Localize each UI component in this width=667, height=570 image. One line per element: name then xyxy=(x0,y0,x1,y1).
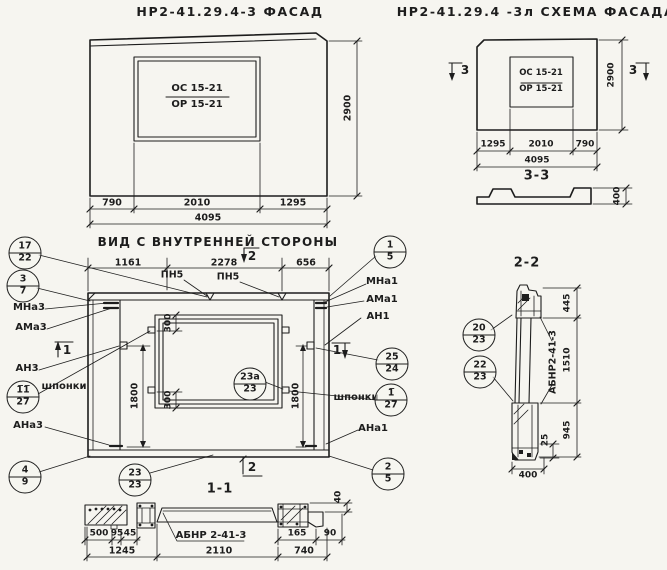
callout-1-5: 1 5 xyxy=(374,236,407,269)
view-dim-300-bottom: 300 xyxy=(165,391,174,410)
s11-dim-165: 165 xyxy=(288,530,307,539)
view-mark-2-bottom: 2 xyxy=(248,461,256,473)
callout-17-22: 17 22 xyxy=(9,237,42,270)
s11-dim-40: 40 xyxy=(335,491,344,504)
scheme-window-mark-top: ОС 15-21 xyxy=(519,69,563,78)
s22-dim-945: 945 xyxy=(564,421,573,440)
view-dim-300-top: 300 xyxy=(165,314,174,333)
drawing-canvas: НР2-41.29.4-3 ФАСАД НР2-41.29.4 -3л СХЕМ… xyxy=(0,0,667,570)
label-mna3: МНа3 xyxy=(13,303,45,313)
scheme-title: НР2-41.29.4 -3л СХЕМА ФАСАДА xyxy=(397,6,667,19)
s11-dim-740: 740 xyxy=(294,546,314,556)
callout-bottom: 27 xyxy=(376,401,407,412)
callout-bottom: 23 xyxy=(465,373,496,384)
callout-23-23: 23 23 xyxy=(119,464,152,497)
scheme-dim-1295: 1295 xyxy=(480,141,505,150)
callout-bottom: 5 xyxy=(375,253,406,264)
facade-dim-2010: 2010 xyxy=(184,198,210,208)
s11-label: АБНР 2-41-3 xyxy=(176,531,247,541)
callout-4-9: 4 9 xyxy=(9,461,42,494)
section-3-3-title: 3-3 xyxy=(524,170,551,183)
s11-dim-90: 90 xyxy=(324,530,337,539)
view-mark-2-top: 2 xyxy=(248,250,256,262)
callout-bottom: 23 xyxy=(464,336,495,347)
s11-dim-1245: 1245 xyxy=(109,546,135,556)
inner-view-title: ВИД С ВНУТРЕННЕЙ СТОРОНЫ xyxy=(98,236,339,248)
s22-dim-445: 445 xyxy=(564,294,573,313)
scheme-dim-2010: 2010 xyxy=(528,141,553,150)
facade-window-mark-top: ОС 15-21 xyxy=(171,84,222,94)
view-dim-1800-right: 1800 xyxy=(291,383,301,409)
callout-bottom: 22 xyxy=(10,254,41,265)
callout-25-24: 25 24 xyxy=(376,348,409,381)
scheme-flag-right: 3 xyxy=(629,64,637,76)
label-an1: АН1 xyxy=(366,312,389,322)
scheme-dim-2900: 2900 xyxy=(608,62,617,87)
view-dim-656: 656 xyxy=(296,258,316,268)
view-dim-2278: 2278 xyxy=(211,258,237,268)
scheme-dim-4095: 4095 xyxy=(524,157,549,166)
callout-3-7: 3 7 xyxy=(7,270,40,303)
label-ama3: АМа3 xyxy=(15,323,46,333)
callout-22-23: 22 23 xyxy=(464,356,497,389)
facade-window-mark-bottom: ОР 15-21 xyxy=(171,100,222,110)
label-mna1: МНа1 xyxy=(366,277,398,287)
s22-dim-400: 400 xyxy=(519,472,538,481)
label-ama1: АМа1 xyxy=(366,295,397,305)
section-2-2-title: 2-2 xyxy=(514,257,541,270)
section-1-1-title: 1-1 xyxy=(207,483,234,496)
label-shponki-left: шпонки xyxy=(41,382,86,392)
callout-bottom: 23 xyxy=(235,385,266,396)
scheme-window-mark-bottom: ОР 15-21 xyxy=(519,85,563,94)
facade-dim-790: 790 xyxy=(102,198,122,208)
callout-bottom: 27 xyxy=(8,398,39,409)
s11-dim-2110: 2110 xyxy=(206,546,232,556)
s22-label: АБНР2-41-3 xyxy=(548,330,558,394)
scheme-flag-left: 3 xyxy=(461,64,469,76)
callout-11-27: 1̅1̅ 27 xyxy=(7,381,40,414)
facade-dim-1295: 1295 xyxy=(280,198,306,208)
callout-bottom: 23 xyxy=(120,481,151,492)
s11-dim-500: 500 xyxy=(90,530,109,539)
s22-dim-1510: 1510 xyxy=(564,347,573,372)
label-shponki-right: шпонки xyxy=(333,393,378,403)
view-pn5-right: ПН5 xyxy=(217,272,240,282)
label-ana1: АНа1 xyxy=(358,424,388,434)
callout-20-23: 20 23 xyxy=(463,319,496,352)
callout-23a-23: 23а 23 xyxy=(234,368,267,401)
drawing-linework xyxy=(0,0,667,570)
callout-bottom: 9 xyxy=(10,478,41,489)
callout-2-5: 2 5 xyxy=(372,458,405,491)
view-dim-1161: 1161 xyxy=(115,258,141,268)
view-pn5-left: ПН5 xyxy=(161,270,184,280)
scheme-dim-790: 790 xyxy=(576,141,595,150)
facade-dim-4095: 4095 xyxy=(195,213,221,223)
s11-dim-45: 45 xyxy=(124,530,137,539)
callout-1-27: 1̅ 27 xyxy=(375,384,408,417)
callout-bottom: 7 xyxy=(8,287,39,298)
view-mark-1-left: 1 xyxy=(63,344,71,356)
profile-dim-400: 400 xyxy=(614,187,623,206)
s22-dim-25: 25 xyxy=(542,434,551,447)
facade-dim-2900: 2900 xyxy=(343,95,353,121)
facade-title: НР2-41.29.4-3 ФАСАД xyxy=(136,6,323,19)
view-mark-1-right: 1 xyxy=(333,344,341,356)
callout-bottom: 5 xyxy=(373,475,404,486)
label-an3: АН3 xyxy=(15,364,38,374)
label-ana3: АНа3 xyxy=(13,421,43,431)
callout-bottom: 24 xyxy=(377,365,408,376)
s11-dim-95: 95 xyxy=(111,530,124,539)
view-dim-1800-left: 1800 xyxy=(130,383,140,409)
